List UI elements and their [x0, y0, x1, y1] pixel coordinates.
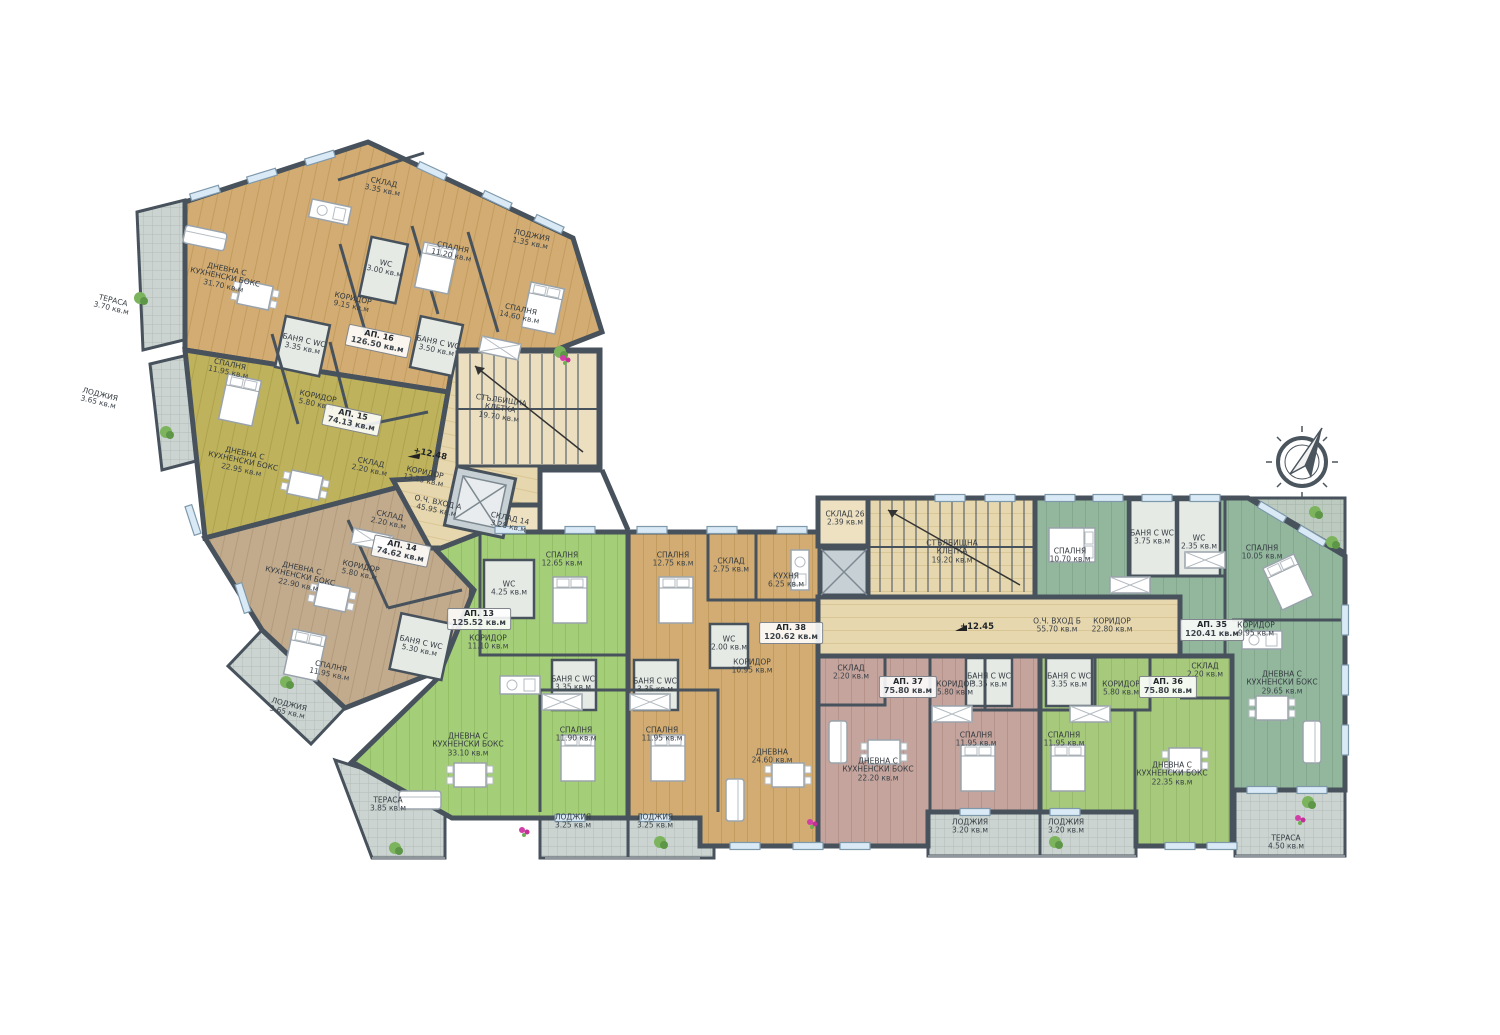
room-label: КУХНЯ6.25 кв.м: [768, 573, 804, 590]
apartment-label: АП. 16126.50 кв.м: [345, 324, 412, 359]
apartment-label: АП. 35120.41 кв.м: [1180, 619, 1244, 641]
room-label: СПАЛНЯ11.20 кв.м: [430, 240, 473, 265]
room-label: WC2.35 кв.м: [1181, 535, 1217, 552]
room-label: СКЛАД 262.39 кв.м: [825, 511, 864, 528]
room-label: СПАЛНЯ11.95 кв.м: [642, 727, 683, 744]
room-label: БАНЯ С WC3.35 кв.м: [551, 676, 595, 693]
room-label: СПАЛНЯ11.95 кв.м: [956, 732, 997, 749]
room-label: КОРИДОР5.80 кв.м: [340, 559, 380, 583]
room-label: СПАЛНЯ11.95 кв.м: [308, 659, 351, 684]
room-label: WC2.00 кв.м: [711, 636, 747, 653]
room-label: БАНЯ С WC3.35 кв.м: [280, 332, 326, 358]
elevation-marker: +12.48: [412, 447, 447, 463]
room-label: О.Ч. ВХОД А45.95 кв.м: [412, 494, 462, 520]
apartment-label: АП. 1574.13 кв.м: [321, 403, 382, 437]
room-label: ДНЕВНА С КУХНЕНСКИ БОКС22.20 кв.м: [837, 757, 919, 782]
room-label: ЛОДЖИЯ3.20 кв.м: [952, 819, 988, 836]
room-label: КОРИДОР22.80 кв.м: [1092, 618, 1133, 635]
room-label: СПАЛНЯ12.65 кв.м: [542, 552, 583, 569]
room-label: СПАЛНЯ11.95 кв.м: [207, 357, 250, 382]
room-label: СКЛАД2.20 кв.м: [833, 665, 869, 682]
room-label: WC4.25 кв.м: [491, 581, 527, 598]
room-label: КОРИДОР11.10 кв.м: [468, 635, 509, 652]
room-label: СКЛАД2.20 кв.м: [370, 508, 409, 532]
room-label: ДНЕВНА С КУХНЕНСКИ БОКС22.90 кв.м: [257, 556, 342, 598]
room-label: ДНЕВНА С КУХНЕНСКИ БОКС31.70 кв.м: [182, 257, 267, 299]
room-label: СТЪЛБИЩНА КЛЕТКА19.20 кв.м: [911, 539, 993, 564]
room-label: ЛОДЖИЯ3.25 кв.м: [555, 814, 591, 831]
apartment-label: АП. 1474.62 кв.м: [370, 534, 431, 568]
room-label: О.Ч. ВХОД Б55.70 кв.м: [1033, 618, 1081, 635]
apartment-label: АП. 38120.62 кв.м: [759, 622, 823, 644]
room-label: ЛОДЖИЯ3.65 кв.м: [268, 696, 307, 721]
room-label: ЛОДЖИЯ1.35 кв.м: [511, 228, 550, 252]
room-label: БАНЯ С WC3.35 кв.м: [1047, 673, 1091, 690]
room-label: СПАЛНЯ11.90 кв.м: [556, 727, 597, 744]
elevation-marker: +12.45: [960, 623, 994, 633]
room-label: ДНЕВНА С КУХНЕНСКИ БОКС29.65 кв.м: [1241, 670, 1323, 695]
room-label: ТЕРАСА4.50 кв.м: [1268, 835, 1304, 852]
room-label: ЛОДЖИЯ3.25 кв.м: [637, 814, 673, 831]
room-label: СПАЛНЯ10.70 кв.м: [1050, 548, 1091, 565]
room-label: СПАЛНЯ11.95 кв.м: [1044, 732, 1085, 749]
room-label: ЛОДЖИЯ3.20 кв.м: [1048, 819, 1084, 836]
apartment-label: АП. 13125.52 кв.м: [447, 608, 511, 630]
room-label: КОРИДОР10.95 кв.м: [732, 659, 773, 676]
room-label: СКЛАД2.75 кв.м: [713, 558, 749, 575]
room-label: WC3.00 кв.м: [366, 256, 405, 280]
room-label: КОРИДОР5.80 кв.м: [1102, 681, 1140, 698]
room-label: БАНЯ С WC3.35 кв.м: [633, 678, 677, 695]
room-label: КОРИДОР9.95 кв.м: [1237, 622, 1275, 639]
apartment-label: АП. 3675.80 кв.м: [1139, 676, 1197, 698]
room-label: ДНЕВНА С КУХНЕНСКИ БОКС33.10 кв.м: [427, 732, 509, 757]
room-label: ДНЕВНА24.60 кв.м: [752, 749, 793, 766]
room-label: БАНЯ С WC3.75 кв.м: [1130, 530, 1174, 547]
room-label: СПАЛНЯ12.75 кв.м: [653, 552, 694, 569]
room-label: СПАЛНЯ14.60 кв.м: [498, 302, 541, 327]
room-label: ДНЕВНА С КУХНЕНСКИ БОКС22.95 кв.м: [200, 441, 285, 483]
room-label: БАНЯ С WC3.35 кв.м: [967, 673, 1011, 690]
room-label: ТЕРАСА3.70 кв.м: [92, 292, 131, 317]
room-label: КОРИДОР13.25 кв.м: [402, 465, 445, 490]
room-label: СПАЛНЯ10.05 кв.м: [1242, 545, 1283, 562]
room-label: ТЕРАСА3.85 кв.м: [370, 797, 406, 814]
room-label: СКЛАД 143.28 кв.м: [488, 511, 530, 536]
room-label: КОРИДОР9.15 кв.м: [332, 291, 372, 315]
room-label: БАНЯ С WC3.50 кв.м: [414, 334, 460, 360]
room-label: СТЪЛБИЩНА КЛЕТКА19.70 кв.м: [458, 391, 543, 427]
room-label: СКЛАД3.35 кв.м: [364, 175, 403, 199]
floor-plan: СКЛАД3.35 кв.мДНЕВНА С КУХНЕНСКИ БОКС31.…: [0, 0, 1500, 1035]
room-label: СКЛАД2.20 кв.м: [351, 455, 390, 479]
room-label: БАНЯ С WC5.30 кв.м: [397, 634, 443, 660]
apartment-label: АП. 3775.80 кв.м: [879, 676, 937, 698]
room-label: ДНЕВНА С КУХНЕНСКИ БОКС22.35 кв.м: [1131, 761, 1213, 786]
room-labels: СКЛАД3.35 кв.мДНЕВНА С КУХНЕНСКИ БОКС31.…: [0, 0, 1500, 1035]
room-label: ЛОДЖИЯ3.65 кв.м: [79, 386, 118, 411]
